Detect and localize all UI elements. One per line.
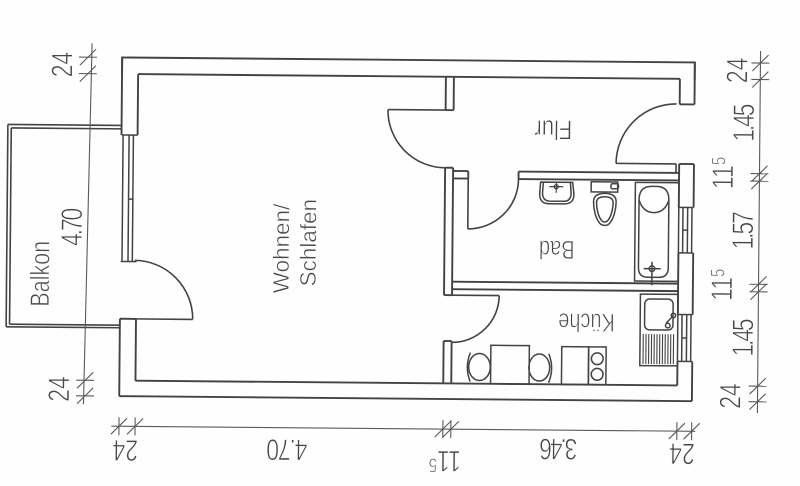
- svg-text:1.57: 1.57: [726, 212, 760, 250]
- svg-text:Wohnen/: Wohnen/: [269, 203, 295, 294]
- svg-text:115: 115: [706, 157, 740, 189]
- svg-text:Balkon: Balkon: [26, 241, 56, 307]
- svg-text:Flur: Flur: [534, 114, 572, 145]
- svg-text:24: 24: [714, 383, 748, 409]
- svg-text:24: 24: [669, 437, 695, 471]
- svg-text:Küche: Küche: [558, 308, 615, 338]
- svg-text:24: 24: [112, 433, 138, 467]
- svg-text:4.70: 4.70: [267, 433, 308, 467]
- svg-text:24: 24: [42, 376, 76, 402]
- svg-text:3.46: 3.46: [540, 432, 578, 466]
- svg-text:24: 24: [45, 51, 79, 77]
- svg-text:4.70: 4.70: [55, 208, 89, 246]
- svg-text:1.45: 1.45: [727, 104, 761, 142]
- svg-text:1.45: 1.45: [726, 319, 760, 357]
- svg-text:115: 115: [429, 444, 461, 478]
- svg-text:Schlafen: Schlafen: [296, 199, 322, 287]
- svg-text:24: 24: [720, 57, 754, 83]
- svg-text:Bad: Bad: [539, 235, 575, 264]
- svg-text:115: 115: [705, 268, 739, 300]
